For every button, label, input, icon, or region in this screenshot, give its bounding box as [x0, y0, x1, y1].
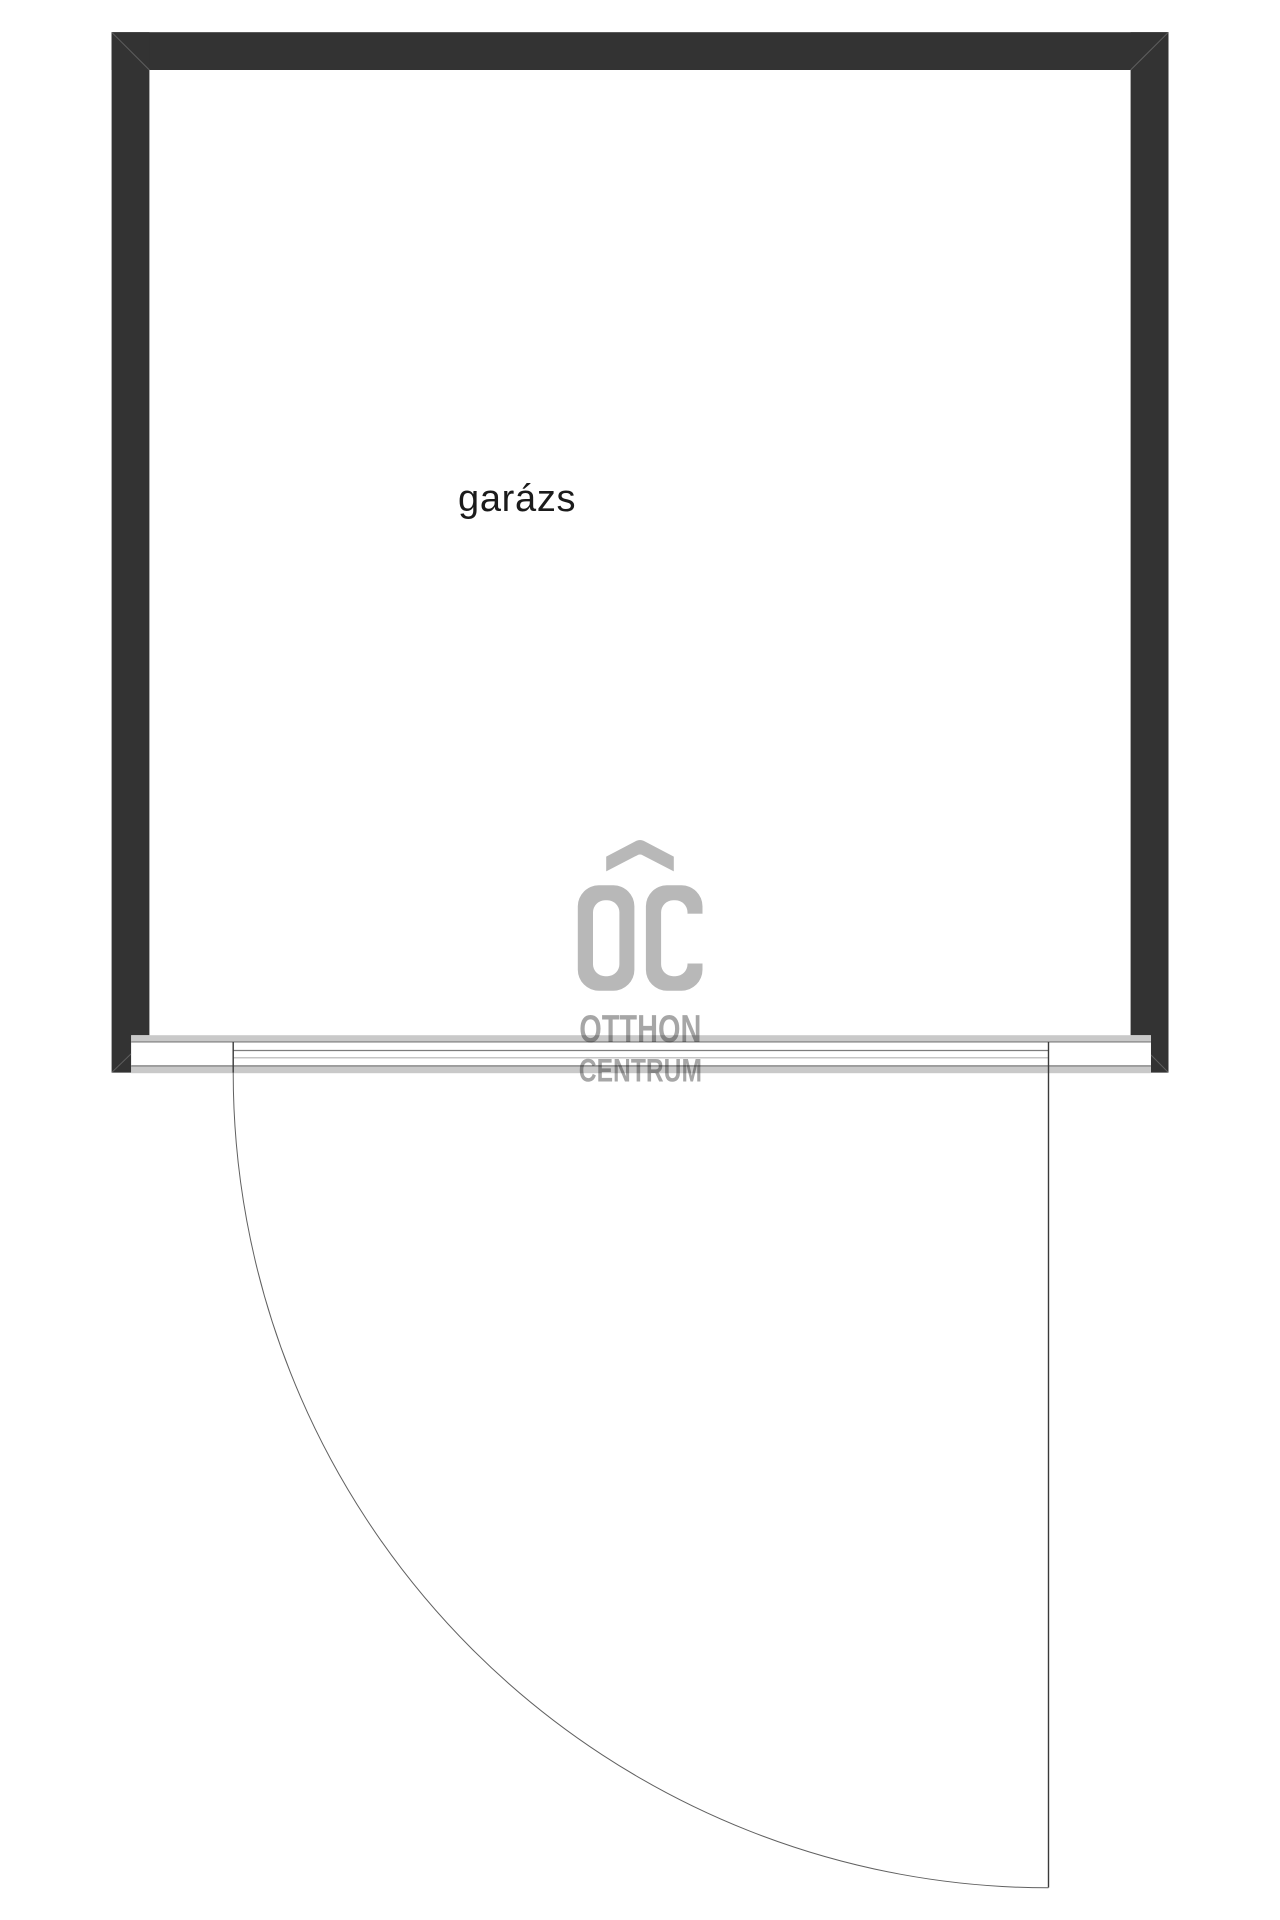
svg-text:OTTHON: OTTHON: [579, 1008, 701, 1051]
svg-text:garázs: garázs: [458, 478, 576, 520]
svg-text:CENTRUM: CENTRUM: [579, 1052, 702, 1088]
